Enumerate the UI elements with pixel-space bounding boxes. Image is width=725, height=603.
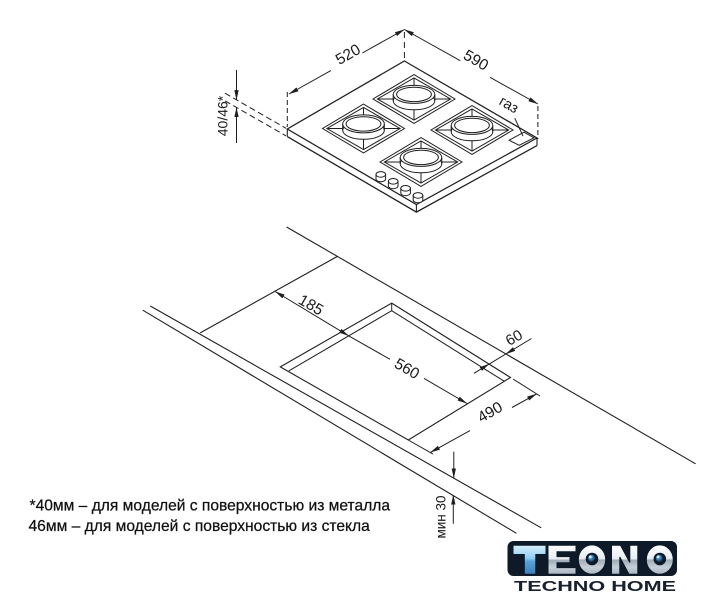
svg-text:мин 30: мин 30 [433, 495, 448, 538]
svg-text:TECHNO HOME: TECHNO HOME [514, 579, 676, 595]
svg-text:40/46*: 40/46* [215, 95, 231, 136]
svg-text:46мм – для моделей с поверхнос: 46мм – для моделей с поверхностью из сте… [29, 518, 371, 535]
svg-text:*40мм – для моделей с поверхно: *40мм – для моделей с поверхностью из ме… [30, 498, 391, 515]
